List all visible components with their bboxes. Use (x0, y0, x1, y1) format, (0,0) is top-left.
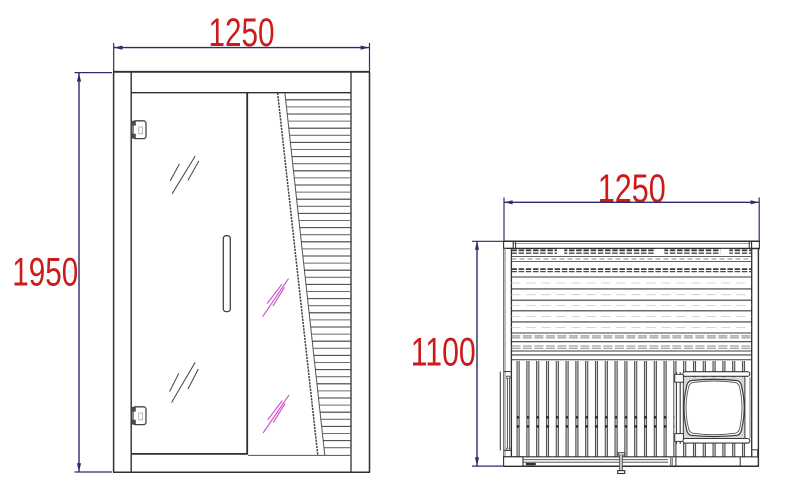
svg-text:1250: 1250 (209, 11, 275, 55)
svg-text:1100: 1100 (411, 330, 476, 374)
svg-text:1250: 1250 (598, 167, 666, 211)
svg-text:1950: 1950 (12, 251, 78, 295)
